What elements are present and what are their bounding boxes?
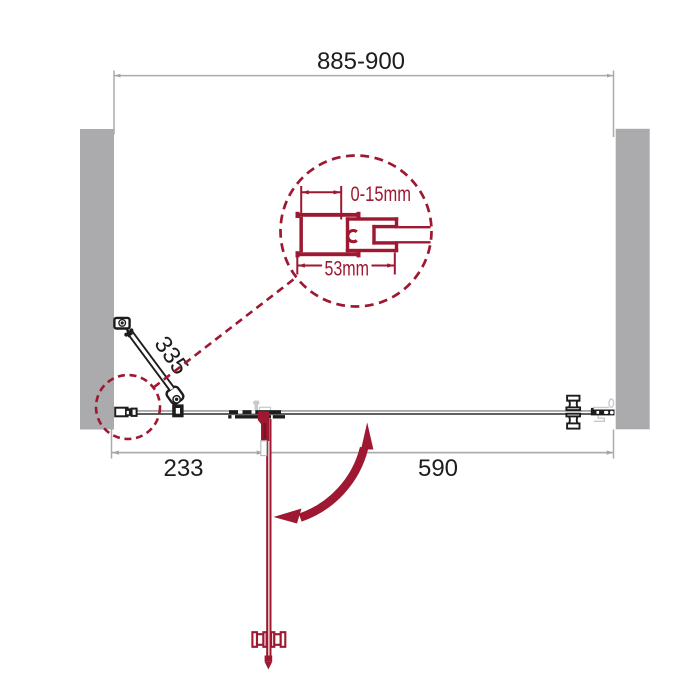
svg-text:590: 590	[418, 455, 458, 482]
svg-text:885-900: 885-900	[317, 48, 405, 75]
svg-text:53mm: 53mm	[325, 257, 370, 280]
svg-text:0-15mm: 0-15mm	[351, 183, 412, 206]
svg-text:233: 233	[163, 455, 203, 482]
